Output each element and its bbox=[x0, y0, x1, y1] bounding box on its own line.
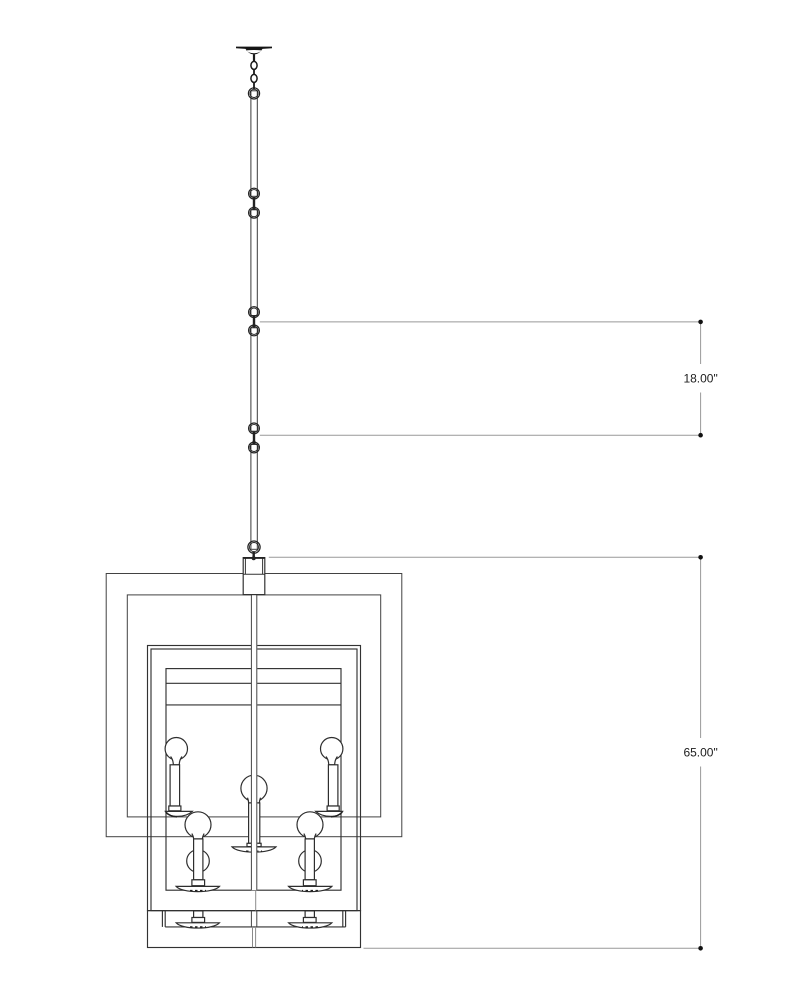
svg-text:18.00": 18.00" bbox=[683, 372, 717, 386]
svg-text:65.00": 65.00" bbox=[683, 746, 717, 760]
